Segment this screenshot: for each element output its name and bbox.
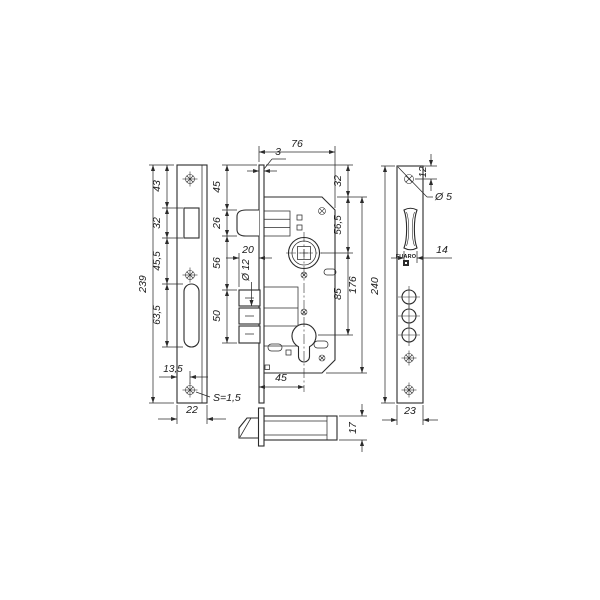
faceplate-cross-section (259, 408, 265, 446)
latch-body-profile (264, 416, 337, 440)
dim-label-13-5: 13,5 (163, 364, 183, 375)
dim-label-45: 45 (211, 181, 223, 193)
dim-label-12: 12 (418, 166, 429, 178)
latch-bolt-side-view: 17 (239, 404, 367, 452)
dim-label-17: 17 (347, 421, 359, 434)
dim-label-56: 56 (211, 257, 223, 269)
brand-logo-dot (405, 262, 407, 264)
dim-label-85: 85 (332, 288, 344, 300)
dim-label-20: 20 (241, 244, 254, 256)
dim-faceplate-width: 22 (158, 404, 226, 424)
dim-label-14: 14 (436, 244, 448, 256)
lock-technical-drawing: 239 43 32 45,5 63,5 13,5 (0, 0, 600, 600)
dim-label-176: 176 (347, 276, 359, 294)
dim-label-32-overhang: 32 (332, 175, 344, 187)
dim-label-76: 76 (291, 138, 303, 150)
deadbolt-slot (184, 284, 199, 347)
faceplate-front-view: 239 43 32 45,5 63,5 13,5 (137, 165, 241, 424)
dim-strike-height: 240 (369, 166, 395, 403)
strike-plate-view: Ø 5 FUARO (369, 154, 452, 425)
dim-label-45-5: 45,5 (152, 251, 163, 271)
note-label-s15: S=1,5 (213, 392, 241, 404)
latch-head-profile (239, 418, 258, 438)
dim-plate-thickness: 3 (247, 146, 286, 171)
faceplate-edge (259, 165, 264, 403)
brand-label: FUARO (396, 254, 417, 260)
lock-body-side-view: 76 3 45 26 56 50 (211, 138, 367, 403)
dim-backset: 45 (259, 372, 304, 387)
dim-label-43: 43 (151, 180, 163, 192)
lock-technical-drawing-page: 239 43 32 45,5 63,5 13,5 (0, 0, 600, 600)
dim-strike-width: 23 (382, 405, 438, 425)
dim-label-56-5: 56,5 (333, 215, 344, 235)
dim-label-23: 23 (403, 405, 416, 417)
latch-cutout (184, 208, 199, 238)
dim-label-dia12: Ø 12 (241, 259, 252, 282)
strike-plate-outline (397, 166, 423, 403)
dim-latch-height: 17 (339, 404, 367, 452)
dim-label-45-backset: 45 (275, 372, 287, 384)
dim-label-50: 50 (211, 310, 223, 322)
dim-label-dia5: Ø 5 (434, 191, 452, 203)
dim-label-3: 3 (275, 146, 281, 158)
dim-label-32: 32 (151, 217, 163, 229)
dim-label-22: 22 (185, 404, 198, 416)
dim-label-239: 239 (137, 275, 149, 294)
dim-label-63-5: 63,5 (152, 305, 163, 325)
latch-bolt-head (237, 210, 259, 236)
dim-label-26: 26 (211, 217, 223, 230)
dim-label-240: 240 (369, 277, 381, 296)
deadbolt-stack (239, 290, 260, 343)
